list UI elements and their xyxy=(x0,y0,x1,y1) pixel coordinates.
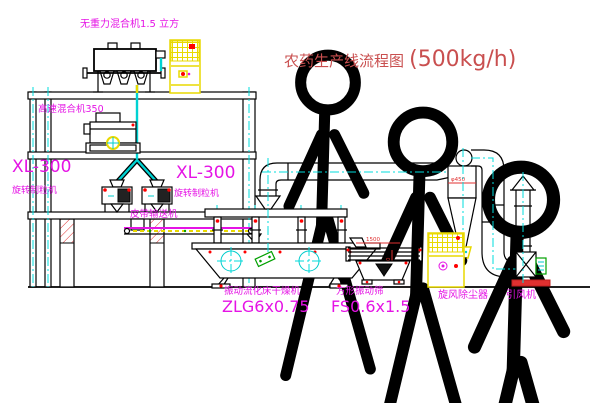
label-dryer-model: ZLG6x0.75 xyxy=(222,297,310,316)
fan-base xyxy=(512,280,550,286)
indicator-chip xyxy=(189,44,195,49)
process-flow-drawing: φ450 xyxy=(0,0,600,403)
diagram-title-name: 农药生产线流程图 xyxy=(284,52,404,70)
indicator-light xyxy=(181,72,185,76)
label-fan: 引风机 xyxy=(506,288,536,301)
sieve-length-dim: 1500 xyxy=(366,237,380,243)
label-granulator-left-name: 旋转制粒机 xyxy=(12,184,57,196)
indicator-light xyxy=(454,264,458,268)
belt-conveyor-unit xyxy=(124,219,261,243)
label-cyclone: 旋风除尘器 xyxy=(438,288,488,301)
diagram-title: 农药生产线流程图 (500kg/h) xyxy=(284,47,516,72)
control-cabinet-right xyxy=(428,233,464,287)
diagram-title-capacity: (500kg/h) xyxy=(409,47,516,72)
fluid-bed-dryer-unit xyxy=(192,205,380,288)
label-sieve-model: FS0.6x1.5 xyxy=(331,297,410,316)
high-speed-mixer-unit xyxy=(84,113,140,153)
label-sieve-name: 方形振动筛 xyxy=(336,285,384,297)
label-gravity-mixer: 无重力混合机1.5 立方 xyxy=(80,17,179,30)
flow-diagram-canvas: φ450 xyxy=(0,0,600,403)
label-granulator-right-model: XL-300 xyxy=(176,163,235,183)
label-high-speed-mixer: 高速混合机350 xyxy=(38,103,104,115)
floor-slab-top xyxy=(28,92,256,99)
label-granulator-right-name: 旋转制粒机 xyxy=(174,187,219,199)
control-cabinet-top xyxy=(170,40,200,93)
label-dryer-name: 振动流化床干燥机 xyxy=(224,285,301,297)
granulator-left-unit xyxy=(102,180,132,212)
indicator-light xyxy=(456,236,460,240)
granulator-right-unit xyxy=(142,180,172,212)
y-chute xyxy=(118,160,156,181)
label-granulator-left-model: XL-300 xyxy=(12,157,71,177)
dryer-hood xyxy=(205,209,347,217)
vibrating-sieve-unit: 1500 240 xyxy=(346,237,422,284)
label-belt-conveyor: 皮带输送机 xyxy=(130,208,178,220)
